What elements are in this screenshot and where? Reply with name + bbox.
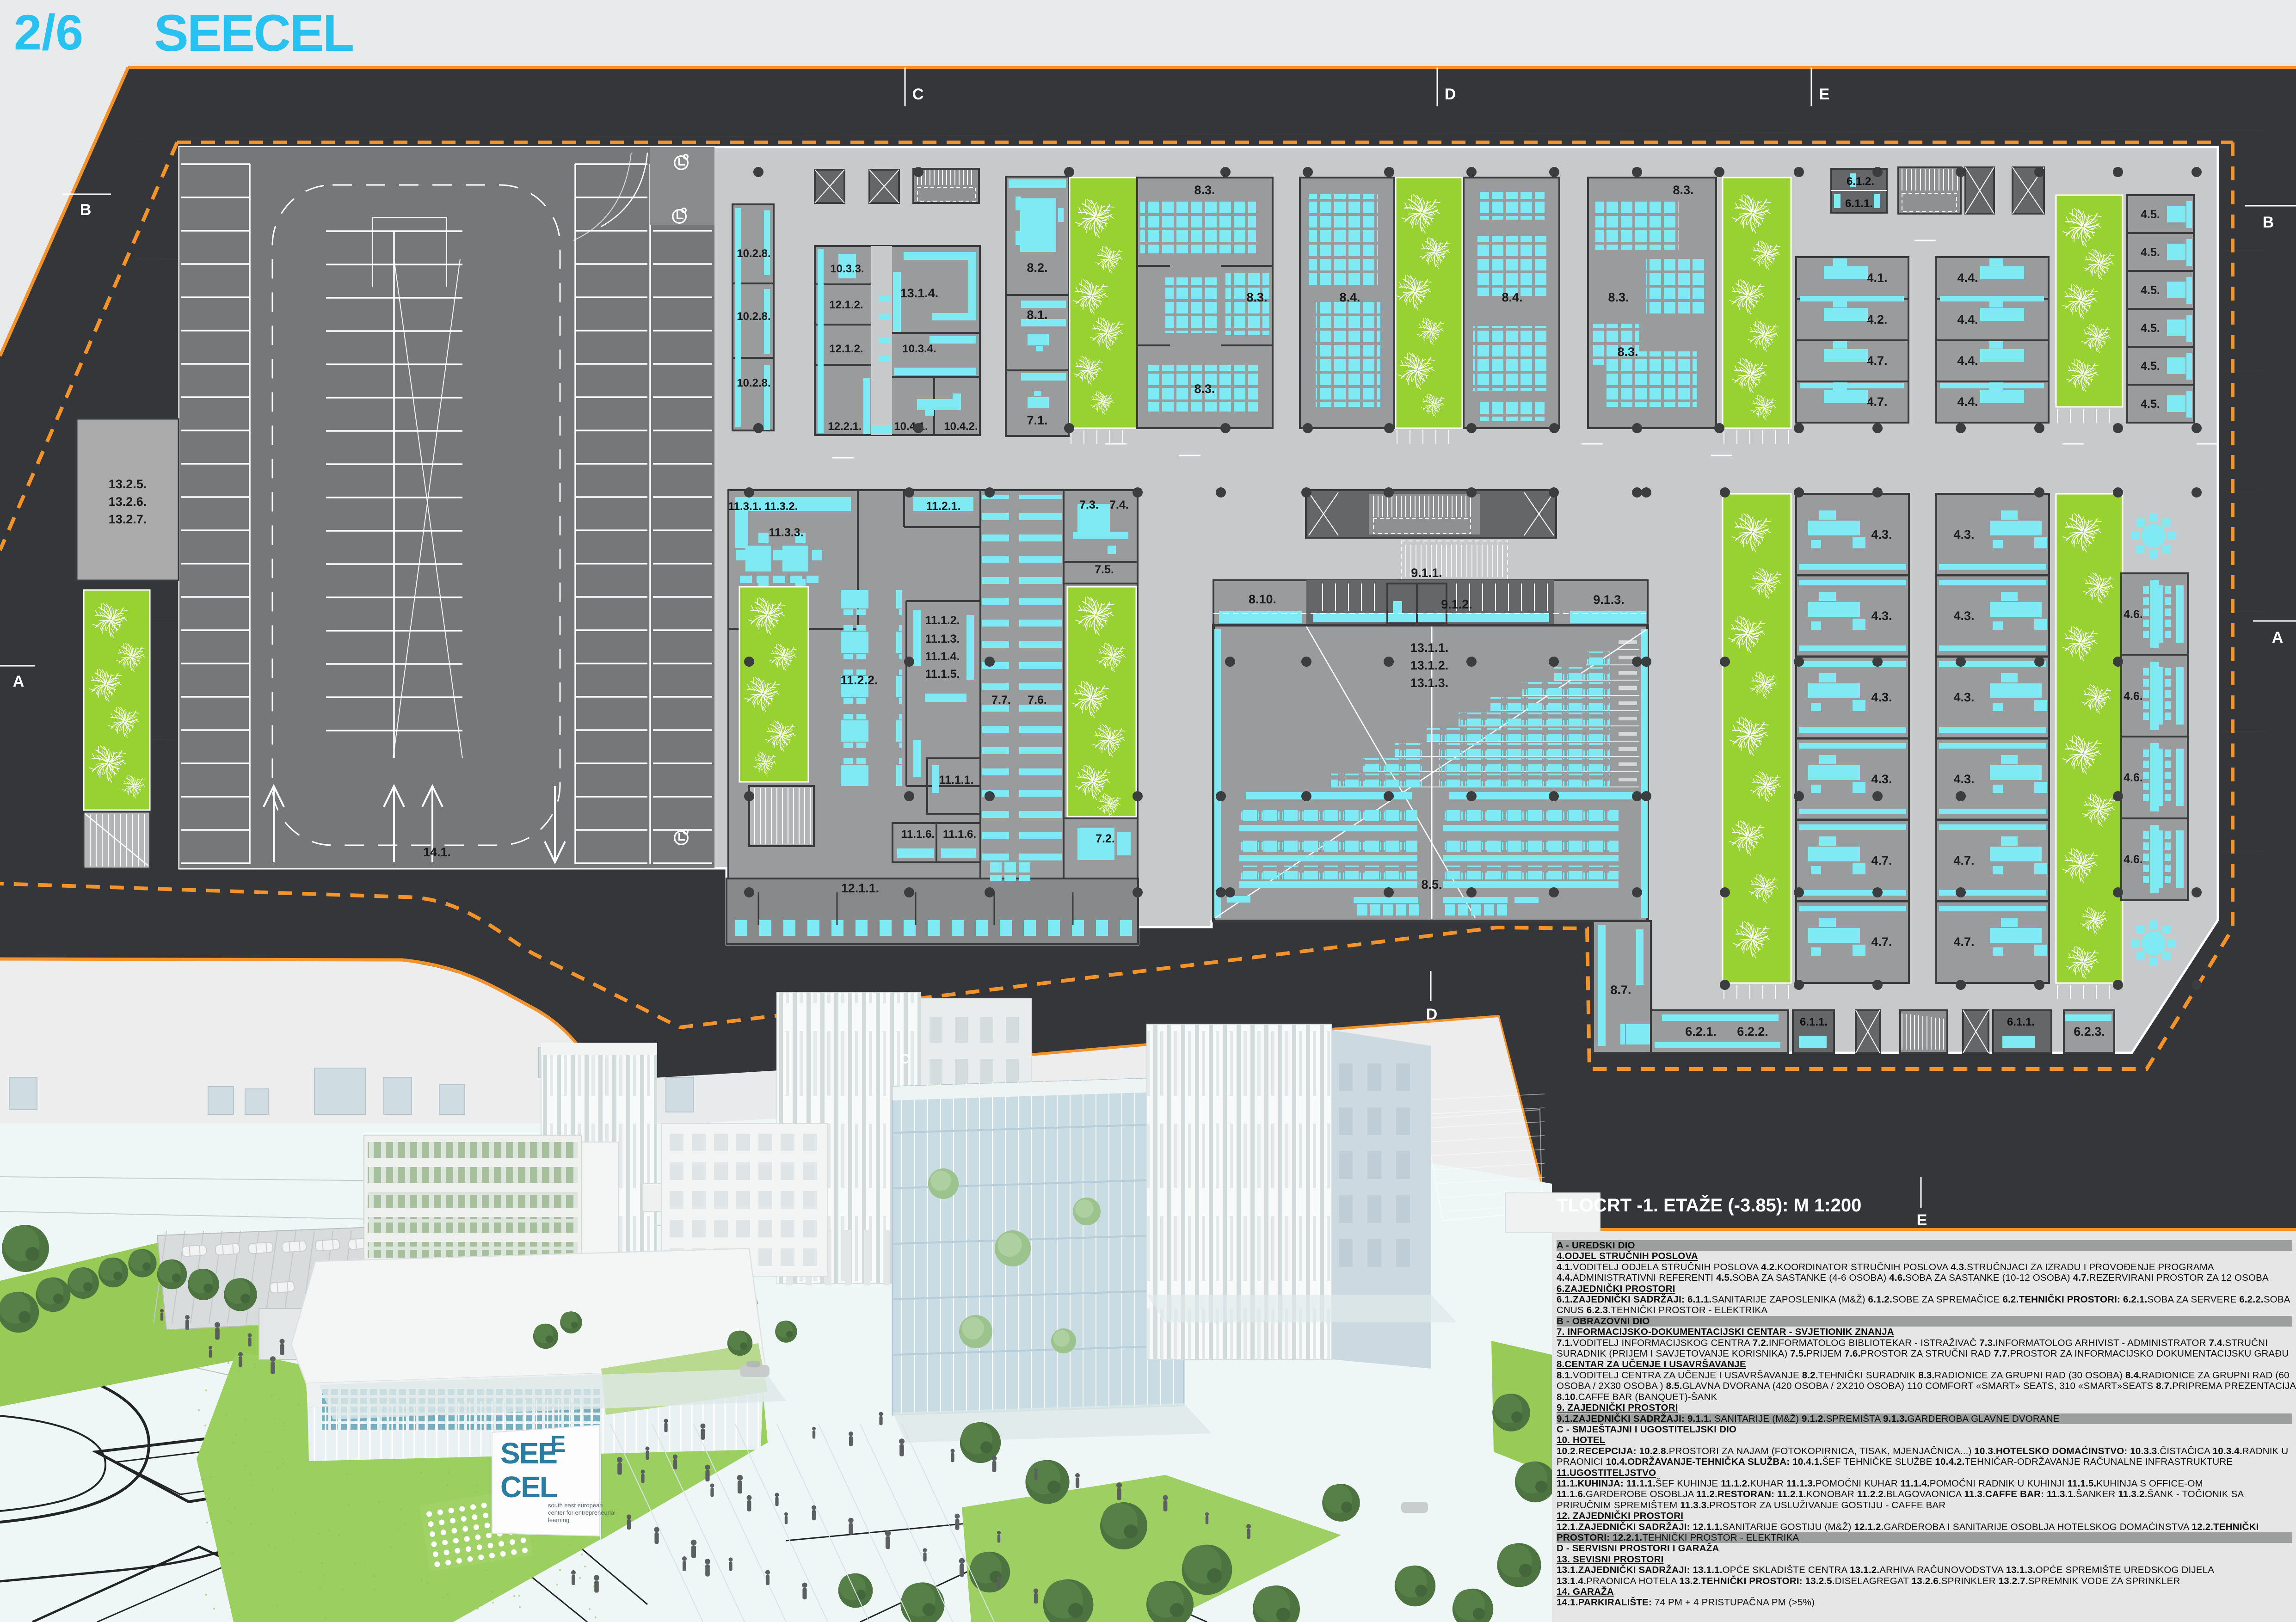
svg-text:6.1.1.: 6.1.1. [1800, 1016, 1828, 1028]
svg-text:8.4.: 8.4. [1339, 290, 1360, 304]
svg-text:4.6.: 4.6. [2124, 690, 2143, 703]
svg-text:6.1.1.: 6.1.1. [2007, 1016, 2035, 1028]
svg-text:E: E [1819, 86, 1830, 103]
svg-text:D: D [1426, 1006, 1438, 1023]
svg-text:11.1.3.: 11.1.3. [925, 633, 960, 645]
svg-text:TLOCRT -1. ETAŽE (-3.85): M 1:: TLOCRT -1. ETAŽE (-3.85): M 1:200 [1557, 1194, 1861, 1216]
svg-text:4.7.: 4.7. [1866, 354, 1887, 368]
svg-text:4.3.: 4.3. [1953, 528, 1974, 541]
svg-text:4.5.: 4.5. [2141, 322, 2160, 335]
svg-text:12.1.2.: 12.1.2. [829, 343, 863, 355]
svg-text:4.2.: 4.2. [1866, 313, 1887, 326]
svg-text:8.3.: 8.3. [1608, 290, 1629, 304]
svg-text:11.2.2.: 11.2.2. [840, 673, 878, 687]
svg-text:7.3.: 7.3. [1079, 498, 1099, 511]
svg-text:C: C [899, 1051, 910, 1067]
svg-text:13.2.5.: 13.2.5. [109, 477, 147, 491]
svg-text:4.6.: 4.6. [2124, 608, 2143, 621]
svg-text:A: A [13, 673, 25, 690]
svg-text:7.5.: 7.5. [1095, 563, 1114, 576]
svg-text:C: C [912, 86, 924, 103]
svg-text:8.3.: 8.3. [1246, 290, 1267, 304]
svg-text:13.1.4.: 13.1.4. [900, 286, 939, 300]
svg-text:11.2.1.: 11.2.1. [926, 500, 960, 513]
svg-text:south east european: south east european [548, 1502, 603, 1509]
svg-text:4.4.: 4.4. [1957, 313, 1978, 326]
svg-text:4.5.: 4.5. [2141, 284, 2160, 297]
svg-text:4.7.: 4.7. [1866, 395, 1887, 409]
svg-text:4.7.: 4.7. [1953, 935, 1974, 949]
svg-text:12.2.1.: 12.2.1. [828, 420, 862, 433]
svg-text:7.4.: 7.4. [1109, 498, 1129, 511]
svg-text:10.3.3.: 10.3.3. [830, 263, 864, 275]
svg-text:9.1.2.: 9.1.2. [1441, 597, 1472, 611]
svg-text:13.1.2.: 13.1.2. [1410, 658, 1449, 672]
svg-text:SEE: SEE [500, 1437, 557, 1470]
svg-text:D: D [1445, 86, 1456, 103]
svg-text:6.2.2.: 6.2.2. [1737, 1025, 1768, 1038]
svg-text:4.5.: 4.5. [2141, 360, 2160, 373]
svg-text:4.3.: 4.3. [1953, 690, 1974, 704]
svg-text:8.5.: 8.5. [1421, 878, 1442, 891]
svg-text:13.1.1.: 13.1.1. [1410, 641, 1449, 655]
svg-text:12.1.1.: 12.1.1. [841, 881, 880, 895]
svg-text:B: B [80, 201, 92, 219]
svg-text:4.6.: 4.6. [2124, 853, 2143, 866]
svg-text:4.5.: 4.5. [2141, 208, 2160, 221]
svg-text:E: E [1917, 1211, 1927, 1229]
svg-text:8.7.: 8.7. [1610, 983, 1631, 997]
svg-text:6.1.1.: 6.1.1. [1845, 197, 1873, 210]
svg-text:7.2.: 7.2. [1096, 832, 1115, 845]
svg-text:center for entrepreneurial: center for entrepreneurial [548, 1509, 616, 1516]
svg-text:11.1.6.: 11.1.6. [943, 828, 976, 841]
svg-text:4.3.: 4.3. [1871, 690, 1892, 704]
svg-text:11.1.5.: 11.1.5. [925, 668, 960, 681]
svg-text:6.2.3.: 6.2.3. [2074, 1025, 2105, 1038]
svg-text:11.1.4.: 11.1.4. [925, 650, 960, 663]
svg-text:2/6: 2/6 [14, 4, 83, 60]
svg-text:4.4.: 4.4. [1957, 395, 1978, 409]
svg-text:10.3.4.: 10.3.4. [902, 343, 936, 355]
svg-text:8.2.: 8.2. [1027, 261, 1047, 275]
svg-text:10.2.8.: 10.2.8. [737, 377, 770, 389]
svg-text:4.5.: 4.5. [2141, 246, 2160, 259]
svg-text:8.4.: 8.4. [1502, 290, 1522, 304]
svg-text:8.3.: 8.3. [1194, 183, 1215, 197]
svg-text:4.1.: 4.1. [1866, 271, 1887, 285]
svg-text:4.5.: 4.5. [2141, 398, 2160, 411]
svg-text:8.3.: 8.3. [1194, 382, 1215, 396]
svg-text:7.7.: 7.7. [991, 694, 1011, 707]
svg-text:4.7.: 4.7. [1871, 935, 1892, 949]
svg-text:14.1.: 14.1. [423, 845, 451, 859]
svg-text:9.1.3.: 9.1.3. [1593, 593, 1625, 607]
svg-text:10.2.8.: 10.2.8. [737, 310, 770, 323]
svg-text:4.3.: 4.3. [1871, 772, 1892, 786]
svg-text:4.3.: 4.3. [1953, 609, 1974, 623]
svg-text:B: B [2263, 214, 2274, 231]
svg-text:11.3.1. 11.3.2.: 11.3.1. 11.3.2. [728, 500, 798, 513]
svg-text:8.1.: 8.1. [1027, 308, 1047, 322]
svg-text:8.3.: 8.3. [1617, 345, 1638, 359]
svg-text:11.1.1.: 11.1.1. [939, 774, 973, 786]
svg-text:4.7.: 4.7. [1871, 854, 1892, 867]
svg-text:A: A [2272, 629, 2284, 646]
svg-text:8.10.: 8.10. [1249, 592, 1276, 606]
svg-text:6.2.1.: 6.2.1. [1685, 1025, 1717, 1038]
svg-text:8.3.: 8.3. [1673, 183, 1693, 197]
svg-text:7.1.: 7.1. [1027, 413, 1047, 427]
svg-text:6.1.2.: 6.1.2. [1847, 175, 1874, 188]
svg-text:11.3.3.: 11.3.3. [769, 526, 803, 539]
svg-text:13.2.7.: 13.2.7. [109, 512, 147, 526]
svg-text:9.1.1.: 9.1.1. [1411, 566, 1442, 580]
svg-text:E: E [550, 1431, 566, 1457]
svg-text:11.1.2.: 11.1.2. [925, 614, 960, 627]
svg-text:13.2.6.: 13.2.6. [109, 495, 147, 509]
svg-text:12.1.2.: 12.1.2. [829, 299, 863, 311]
svg-text:10.4.2.: 10.4.2. [944, 420, 978, 433]
svg-text:4.3.: 4.3. [1871, 609, 1892, 623]
svg-text:4.3.: 4.3. [1871, 528, 1892, 541]
svg-text:learning: learning [548, 1517, 569, 1524]
svg-text:10.2.8.: 10.2.8. [737, 247, 770, 260]
svg-text:13.1.3.: 13.1.3. [1410, 676, 1449, 690]
svg-text:4.4.: 4.4. [1957, 271, 1978, 285]
svg-text:7.6.: 7.6. [1028, 694, 1047, 707]
svg-text:4.6.: 4.6. [2124, 771, 2143, 784]
svg-text:4.3.: 4.3. [1953, 772, 1974, 786]
svg-text:4.4.: 4.4. [1957, 354, 1978, 368]
svg-text:4.7.: 4.7. [1953, 854, 1974, 867]
svg-text:CEL: CEL [500, 1470, 557, 1504]
svg-text:11.1.6.: 11.1.6. [901, 828, 935, 841]
svg-text:SEECEL: SEECEL [154, 4, 353, 62]
